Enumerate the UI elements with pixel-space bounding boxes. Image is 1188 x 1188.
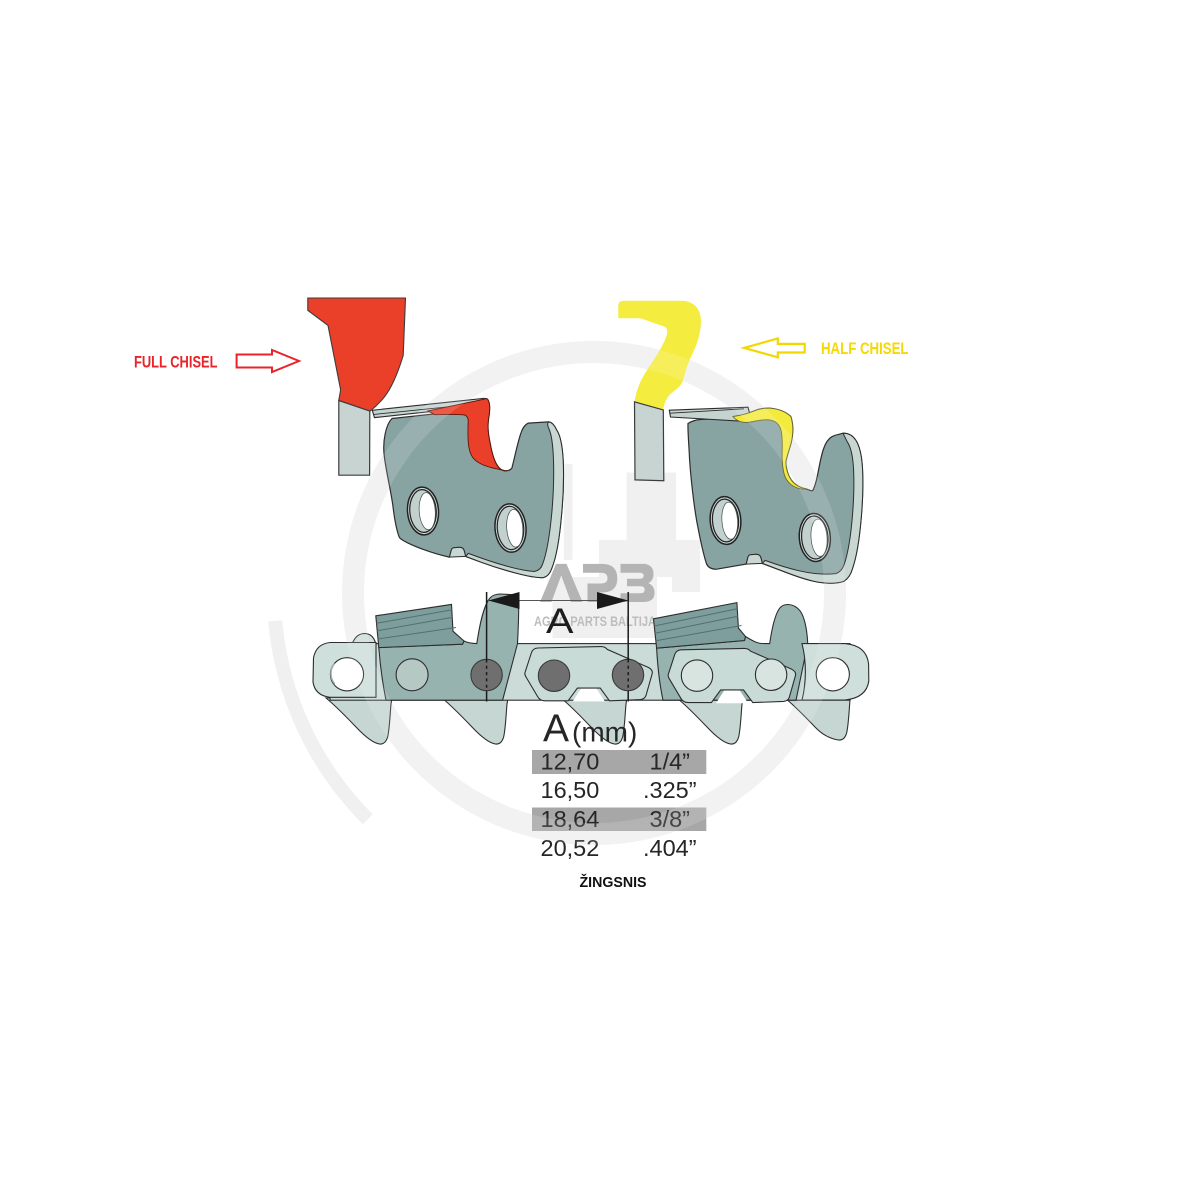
svg-text:FULL CHISEL: FULL CHISEL <box>134 354 218 372</box>
svg-text:.404”: .404” <box>643 835 697 861</box>
svg-text:ŽINGSNIS: ŽINGSNIS <box>580 873 647 891</box>
svg-text:12,70: 12,70 <box>541 749 600 775</box>
svg-text:(mm): (mm) <box>572 717 637 748</box>
svg-text:.325”: .325” <box>643 777 697 803</box>
svg-text:16,50: 16,50 <box>541 777 600 803</box>
svg-text:A: A <box>546 602 574 641</box>
svg-text:A: A <box>543 708 569 751</box>
svg-text:HALF CHISEL: HALF CHISEL <box>821 340 909 358</box>
svg-text:1/4”: 1/4” <box>650 749 691 775</box>
